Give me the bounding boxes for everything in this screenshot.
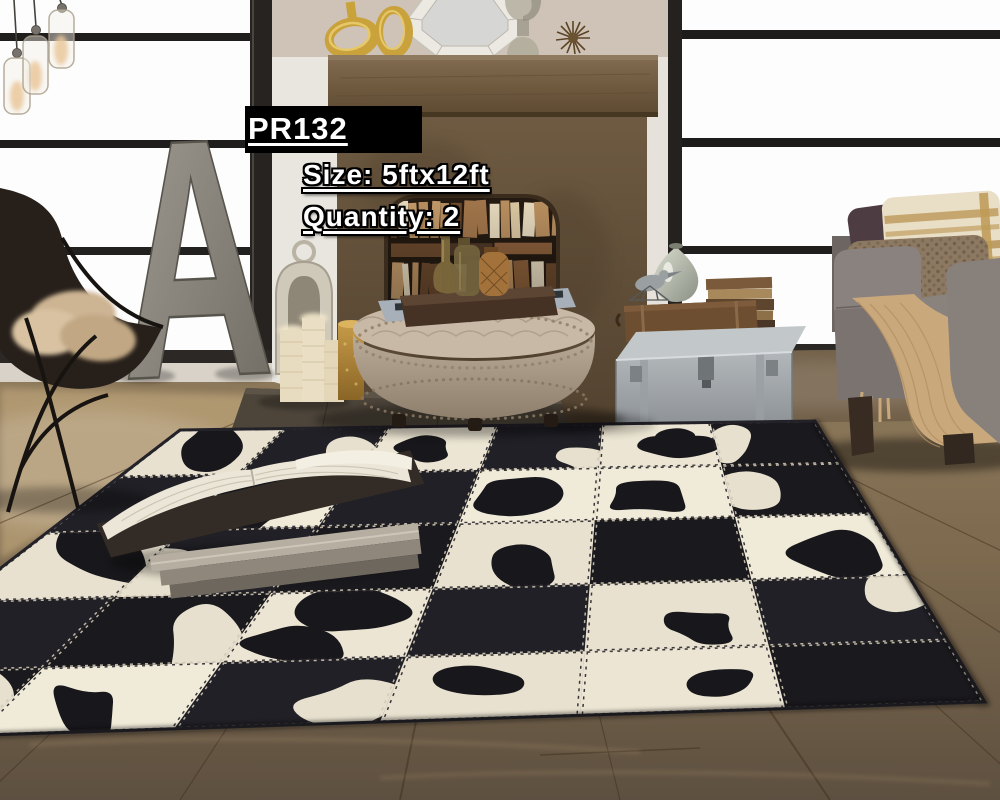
product-code-box: PR132: [245, 106, 422, 153]
cow-spot: [610, 480, 685, 511]
quantity-label: Quantity: 2: [303, 201, 460, 233]
size-label: Size: 5ftx12ft: [303, 159, 490, 191]
sofa-foot: [848, 396, 874, 456]
rug-patch: [406, 584, 590, 657]
living-room-photo: A: [0, 0, 1000, 800]
octagon-mirror: [408, 0, 522, 56]
rug-patch: [580, 646, 786, 716]
rug-patch: [590, 517, 752, 584]
scene-canvas: A: [0, 0, 1000, 800]
cowhide-rug: [0, 421, 985, 747]
product-code-label: PR132: [248, 111, 348, 147]
sofa-foot: [943, 433, 975, 465]
